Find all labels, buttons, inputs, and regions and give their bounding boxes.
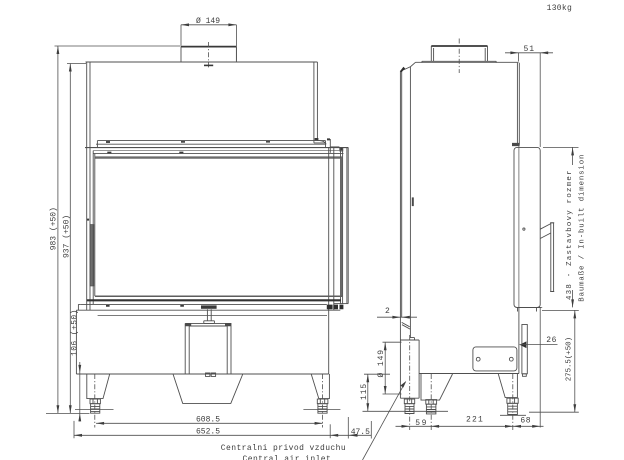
svg-text:Ø 149: Ø 149 bbox=[196, 17, 220, 26]
svg-text:275.5(+50): 275.5(+50) bbox=[565, 337, 573, 381]
svg-text:937 (+50): 937 (+50) bbox=[63, 215, 72, 258]
svg-text:51: 51 bbox=[524, 45, 535, 54]
svg-text:608.5: 608.5 bbox=[196, 415, 220, 424]
svg-text:Ø 149: Ø 149 bbox=[377, 349, 386, 378]
svg-text:106 (+50): 106 (+50) bbox=[71, 309, 80, 356]
svg-text:Central air inlet: Central air inlet bbox=[243, 455, 332, 460]
svg-text:68: 68 bbox=[520, 416, 531, 425]
svg-text:130kg: 130kg bbox=[547, 4, 573, 13]
svg-text:983 (+50): 983 (+50) bbox=[50, 207, 59, 250]
svg-text:Baumaße / In-built dimension: Baumaße / In-built dimension bbox=[578, 154, 586, 302]
svg-text:438 - Zastavbovy rozmer: 438 - Zastavbovy rozmer bbox=[566, 169, 574, 300]
svg-text:221: 221 bbox=[466, 415, 484, 424]
svg-text:652.5: 652.5 bbox=[196, 427, 220, 436]
svg-text:47.5: 47.5 bbox=[351, 428, 370, 437]
svg-text:Centralni privod vzduchu: Centralni privod vzduchu bbox=[221, 444, 346, 453]
svg-text:59: 59 bbox=[415, 419, 428, 428]
svg-text:2: 2 bbox=[385, 307, 390, 316]
svg-text:26: 26 bbox=[546, 336, 557, 345]
svg-text:115: 115 bbox=[360, 383, 369, 400]
